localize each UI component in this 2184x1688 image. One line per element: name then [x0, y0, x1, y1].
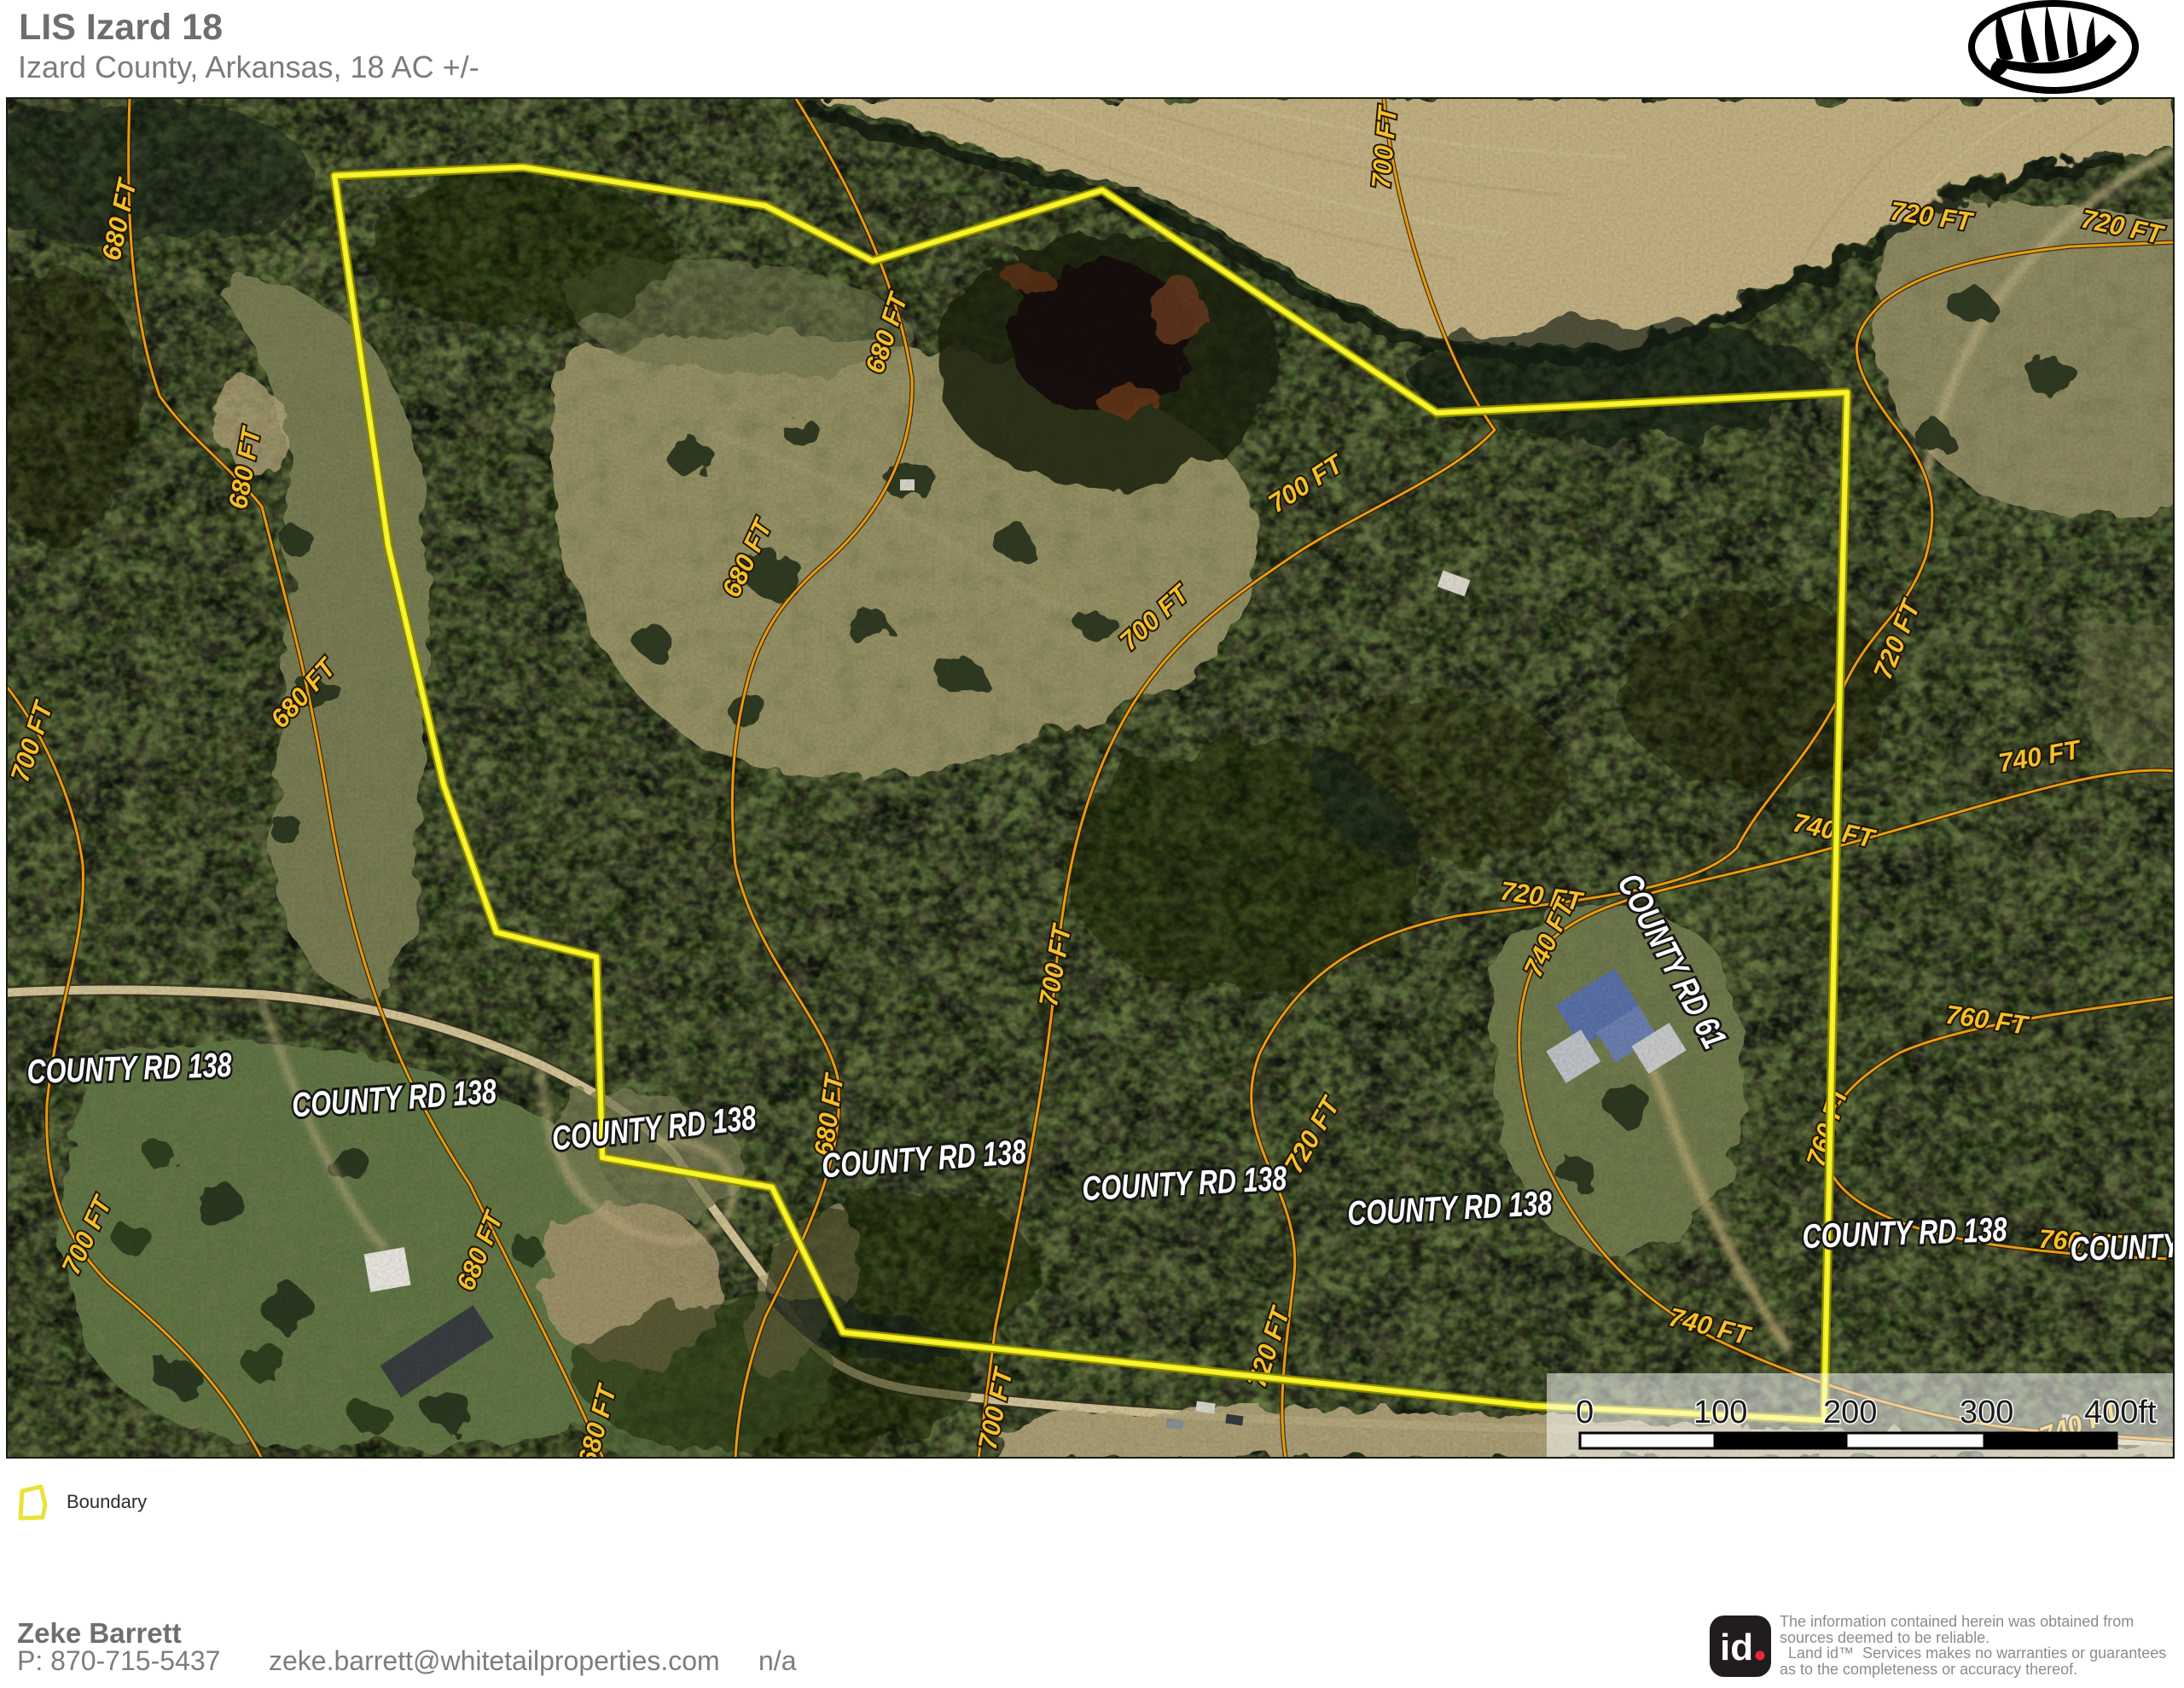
svg-text:id: id	[1720, 1627, 1753, 1668]
svg-text:COUNTY RD 138: COUNTY RD 138	[2070, 1224, 2175, 1268]
svg-text:COUNTY RD 138: COUNTY RD 138	[26, 1047, 233, 1091]
svg-text:200: 200	[1823, 1395, 1877, 1430]
svg-text:400ft: 400ft	[2084, 1395, 2157, 1430]
svg-text:100: 100	[1693, 1395, 1747, 1430]
svg-text:0: 0	[1576, 1395, 1594, 1430]
svg-text:300: 300	[1960, 1395, 2013, 1430]
svg-text:COUNTY RD 138: COUNTY RD 138	[1802, 1211, 2008, 1256]
